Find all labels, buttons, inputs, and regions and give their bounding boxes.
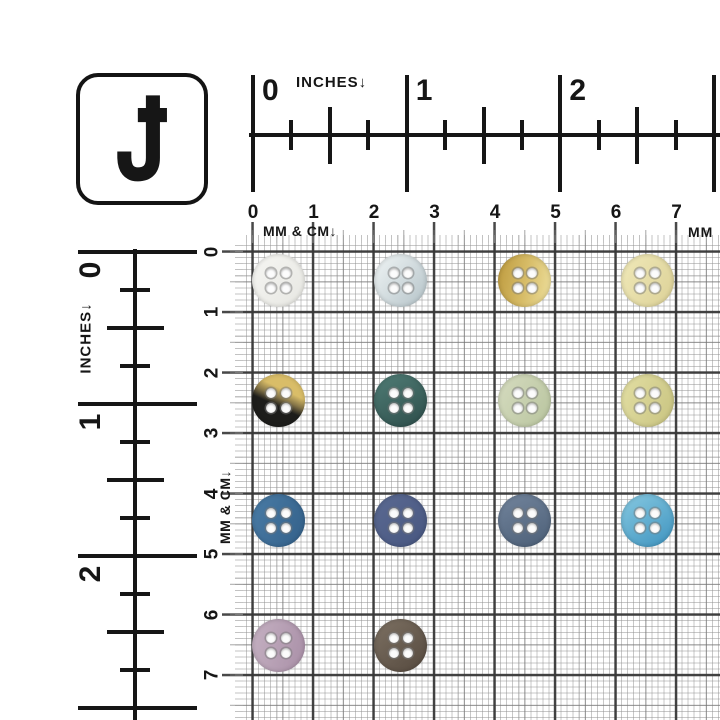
button-hole (527, 268, 537, 278)
button-hole (389, 633, 399, 643)
button-hole (635, 523, 645, 533)
inch-tick (78, 250, 197, 254)
inch-tick (674, 120, 678, 150)
inch-tick (120, 516, 150, 520)
button-hole (513, 268, 523, 278)
button-hole (635, 283, 645, 293)
button-slate-blue (374, 494, 427, 547)
button-hole (513, 388, 523, 398)
cm-number: 7 (203, 670, 222, 681)
inch-tick (120, 592, 150, 596)
button-hole (513, 523, 523, 533)
button-hole (266, 648, 276, 658)
top-inches-label: INCHES↓ (296, 75, 367, 90)
button-blue-gray (498, 494, 551, 547)
inch-tick (107, 478, 164, 482)
button-hole (266, 388, 276, 398)
button-hole (389, 508, 399, 518)
button-hole (266, 633, 276, 643)
button-hole (266, 283, 276, 293)
button-hole (513, 508, 523, 518)
inch-tick (78, 706, 197, 710)
top-mm-cm-label: MM & CM↓ (263, 224, 337, 238)
inch-number: 2 (76, 565, 106, 582)
button-hole (650, 403, 660, 413)
inch-tick (558, 75, 562, 192)
inch-number: 0 (262, 76, 279, 106)
cm-number: 6 (203, 609, 222, 620)
inch-tick (251, 75, 255, 192)
button-hole (403, 523, 413, 533)
inch-tick (120, 364, 150, 368)
cm-number: 4 (490, 203, 501, 222)
left-inches-label: INCHES↓ (79, 302, 94, 373)
inch-tick (107, 326, 164, 330)
cm-number: 6 (611, 203, 622, 222)
button-hole (281, 633, 291, 643)
button-hole (635, 268, 645, 278)
button-measurement-photo: 012 INCHES↓ 01234567 MM & CM↓ MM 012 INC… (0, 0, 720, 720)
button-hole (403, 268, 413, 278)
button-steel-blue (252, 494, 305, 547)
left-mm-cm-label: MM & CM↓ (218, 470, 232, 544)
inch-number: 0 (76, 261, 106, 278)
button-taupe-brown (374, 619, 427, 672)
button-hole (266, 268, 276, 278)
inch-tick (482, 107, 486, 164)
button-dark-teal (374, 374, 427, 427)
button-hole (527, 283, 537, 293)
inch-tick (366, 120, 370, 150)
button-cream-yellow (621, 254, 674, 307)
button-hole (266, 523, 276, 533)
button-hole (527, 508, 537, 518)
button-hole (403, 283, 413, 293)
inch-tick (289, 120, 293, 150)
button-hole (527, 523, 537, 533)
cm-number: 0 (248, 203, 259, 222)
button-hole (650, 508, 660, 518)
inch-tick (712, 75, 716, 192)
cm-number: 5 (203, 549, 222, 560)
button-mauve (252, 619, 305, 672)
button-gold-black-two-tone (252, 374, 305, 427)
cm-number: 2 (203, 367, 222, 378)
inch-tick (443, 120, 447, 150)
button-hole (281, 508, 291, 518)
button-hole (266, 403, 276, 413)
inch-tick (120, 288, 150, 292)
button-hole (650, 283, 660, 293)
cm-number: 7 (671, 203, 682, 222)
inch-tick (78, 402, 197, 406)
inch-tick (328, 107, 332, 164)
button-hole (389, 648, 399, 658)
button-hole (527, 403, 537, 413)
inch-tick (520, 120, 524, 150)
inch-tick (597, 120, 601, 150)
inch-number: 1 (416, 76, 433, 106)
inch-tick (635, 107, 639, 164)
button-hole (389, 388, 399, 398)
button-gold (498, 254, 551, 307)
inch-number: 1 (76, 413, 106, 430)
cm-number: 3 (429, 203, 440, 222)
left-inch-ruler-baseline (133, 249, 137, 720)
button-hole (635, 403, 645, 413)
button-hole (403, 648, 413, 658)
button-pale-blue-gray (374, 254, 427, 307)
button-hole (635, 508, 645, 518)
button-hole (389, 283, 399, 293)
inch-tick (78, 554, 197, 558)
button-hole (281, 403, 291, 413)
button-hole (389, 523, 399, 533)
cm-number: 5 (550, 203, 561, 222)
button-hole (389, 268, 399, 278)
button-hole (635, 388, 645, 398)
button-hole (281, 283, 291, 293)
button-hole (403, 633, 413, 643)
button-hole (403, 508, 413, 518)
button-hole (527, 388, 537, 398)
cm-number: 1 (203, 307, 222, 318)
brand-logo (76, 73, 208, 205)
cm-number: 0 (203, 246, 222, 257)
inch-number: 2 (569, 76, 586, 106)
button-white (252, 254, 305, 307)
cm-number: 1 (308, 203, 319, 222)
button-hole (389, 403, 399, 413)
button-sage-green (498, 374, 551, 427)
cm-number: 3 (203, 428, 222, 439)
button-sky-blue (621, 494, 674, 547)
inch-tick (405, 75, 409, 192)
button-hole (650, 388, 660, 398)
button-hole (281, 268, 291, 278)
button-hole (650, 268, 660, 278)
cm-number: 2 (369, 203, 380, 222)
inch-tick (120, 440, 150, 444)
button-hole (281, 523, 291, 533)
button-hole (513, 403, 523, 413)
button-hole (281, 388, 291, 398)
left-mm-ticks (235, 243, 243, 720)
button-hole (266, 508, 276, 518)
inch-tick (107, 630, 164, 634)
inch-tick (120, 668, 150, 672)
button-hole (403, 403, 413, 413)
button-hole (403, 388, 413, 398)
button-light-olive (621, 374, 674, 427)
top-right-mm-label: MM (688, 225, 713, 239)
button-hole (650, 523, 660, 533)
graph-paper-grid (243, 243, 720, 720)
button-hole (281, 648, 291, 658)
letter-j-cross-icon (90, 87, 194, 191)
button-hole (513, 283, 523, 293)
